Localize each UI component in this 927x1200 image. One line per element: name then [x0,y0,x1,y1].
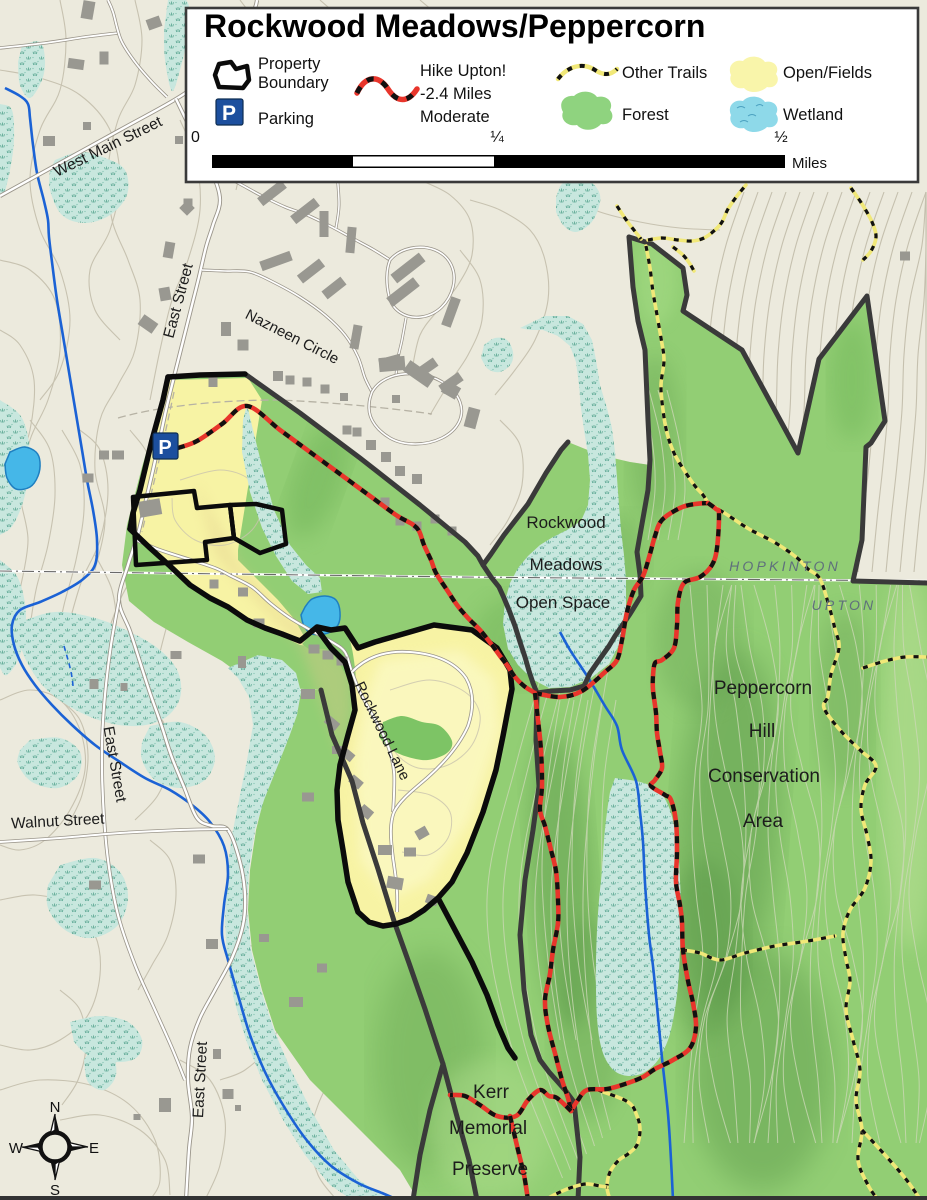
svg-text:¼: ¼ [490,129,504,146]
svg-text:Open/Fields: Open/Fields [783,64,872,82]
svg-text:E: E [89,1140,99,1157]
svg-text:Other Trails: Other Trails [622,64,707,82]
svg-text:Open Space: Open Space [516,593,611,612]
svg-text:Hill: Hill [749,721,775,742]
svg-text:Miles: Miles [792,155,827,172]
svg-text:½: ½ [774,129,787,146]
svg-text:Parking: Parking [258,110,314,128]
svg-text:Boundary: Boundary [258,74,329,92]
svg-text:HOPKINTON: HOPKINTON [729,558,841,574]
svg-text:Hike Upton!: Hike Upton! [420,62,506,80]
svg-text:Preserve: Preserve [452,1159,528,1180]
svg-text:Forest: Forest [622,106,669,124]
svg-text:Memorial: Memorial [449,1118,527,1139]
svg-text:Conservation: Conservation [708,766,820,787]
svg-text:Meadows: Meadows [530,555,603,574]
svg-text:Kerr: Kerr [473,1082,510,1103]
svg-text:Rockwood Meadows/Peppercorn: Rockwood Meadows/Peppercorn [204,8,705,44]
svg-text:Wetland: Wetland [783,106,843,124]
svg-text:P: P [222,102,236,125]
svg-text:W: W [9,1140,24,1157]
svg-text:Rockwood: Rockwood [526,513,605,532]
svg-text:Peppercorn: Peppercorn [714,678,812,699]
svg-text:UPTON: UPTON [812,597,877,613]
svg-text:-2.4 Miles: -2.4 Miles [420,85,492,103]
svg-text:Property: Property [258,55,321,73]
svg-text:Moderate: Moderate [420,108,490,126]
svg-text:Area: Area [743,811,784,832]
svg-text:P: P [158,437,171,459]
svg-text:0: 0 [191,129,200,146]
svg-text:N: N [50,1099,61,1116]
